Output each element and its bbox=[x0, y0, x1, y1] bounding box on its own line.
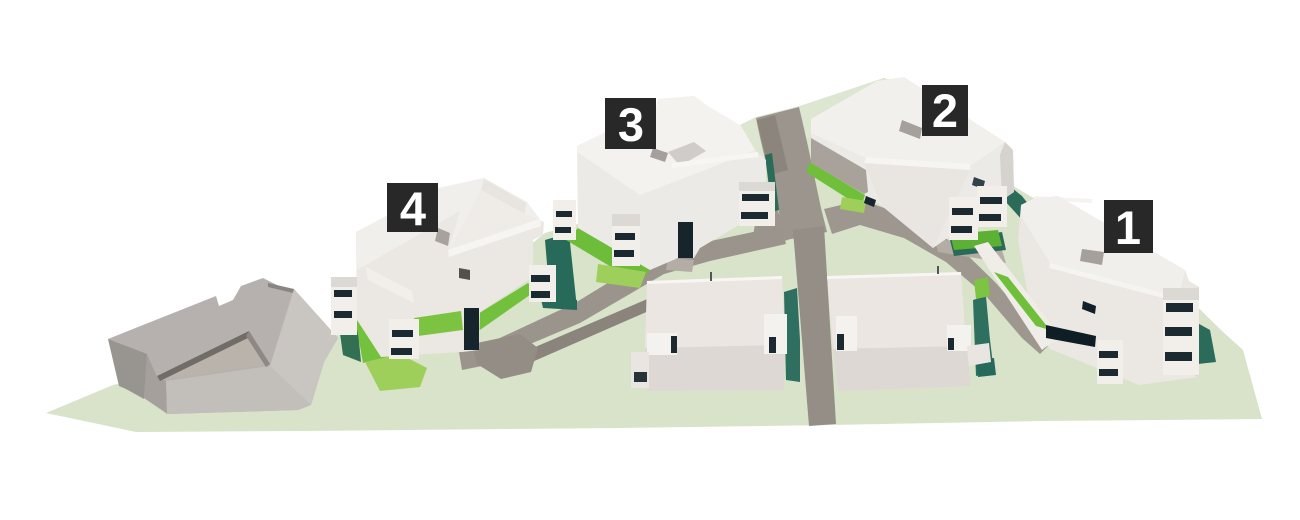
svg-text:3: 3 bbox=[618, 98, 644, 151]
svg-text:1: 1 bbox=[1115, 201, 1141, 254]
svg-text:4: 4 bbox=[400, 182, 426, 235]
svg-text:2: 2 bbox=[932, 84, 958, 137]
